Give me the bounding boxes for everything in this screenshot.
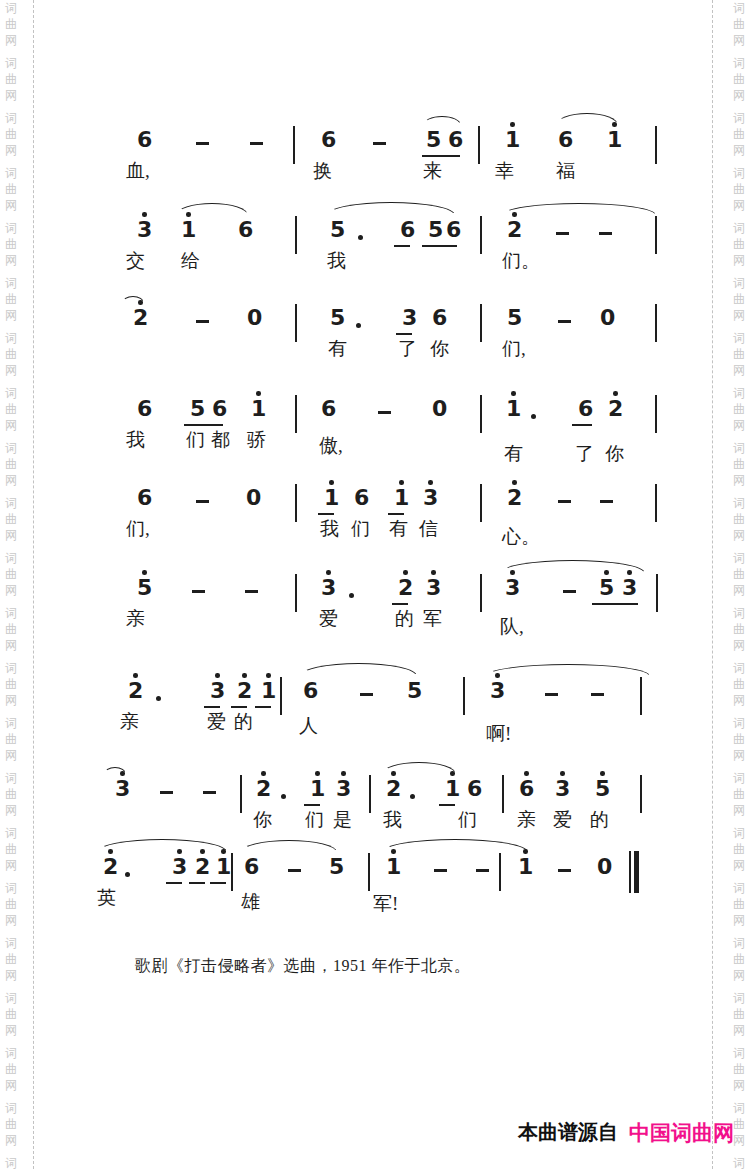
watermark-text: 网 — [733, 639, 745, 651]
note-digit: 5 — [190, 397, 205, 421]
watermark-text: 词 — [5, 167, 17, 179]
slur-arc — [382, 839, 528, 852]
note-digit: 1 — [216, 855, 231, 879]
duration-dash — [196, 142, 209, 145]
note-digit: 2 — [128, 679, 143, 703]
duration-dash — [563, 590, 576, 593]
watermark-text: 词 — [733, 882, 745, 894]
note-digit: 6 — [238, 218, 253, 242]
watermark-text: 网 — [733, 1079, 745, 1091]
watermark-text: 曲 — [5, 843, 17, 855]
watermark-text: 曲 — [5, 1008, 17, 1020]
note-digit: 6 — [244, 855, 259, 879]
watermark-text: 词 — [733, 112, 745, 124]
watermark-text: 词 — [5, 1047, 17, 1059]
note-digit: 3 — [423, 486, 438, 510]
lyric-syllable: 幸 — [495, 160, 514, 181]
lyric-syllable: 的 — [395, 608, 414, 629]
note-digit: 5 — [407, 679, 422, 703]
note-digit: 3 — [505, 576, 520, 600]
slur-arc — [176, 203, 248, 215]
octave-dot — [142, 212, 147, 217]
watermark-text: 网 — [5, 694, 17, 706]
lyric-syllable: 军 — [423, 608, 442, 629]
barline — [231, 853, 233, 891]
footer-site-link[interactable]: 中国词曲网 — [629, 1119, 734, 1147]
footer-source-label: 本曲谱源自 — [518, 1119, 618, 1146]
note-digit: 2 — [398, 576, 413, 600]
slur-arc — [327, 202, 455, 215]
watermark-text: 词 — [5, 57, 17, 69]
eighth-underline — [394, 245, 410, 247]
slur-arc — [382, 762, 456, 774]
duration-dash — [192, 590, 205, 593]
eighth-underline — [255, 706, 271, 708]
note-digit: 3 — [336, 777, 351, 801]
watermark-text: 词 — [5, 827, 17, 839]
eighth-underline — [439, 804, 455, 806]
watermark-text: 词 — [5, 112, 17, 124]
note-digit: 1 — [505, 128, 520, 152]
note-digit: 5 — [428, 218, 443, 242]
lyric-syllable: 雄 — [241, 891, 260, 912]
watermark-text: 网 — [5, 364, 17, 376]
note-digit: 0 — [597, 855, 612, 879]
barline — [480, 216, 482, 254]
note-digit: 2 — [608, 397, 623, 421]
eighth-underline — [210, 882, 226, 884]
watermark-text: 曲 — [733, 128, 745, 140]
barline — [293, 126, 295, 164]
watermark-text: 词 — [5, 717, 17, 729]
lyric-syllable: 亲 — [120, 711, 139, 732]
watermark-text: 网 — [733, 144, 745, 156]
octave-dot — [133, 673, 138, 678]
duration-dash — [556, 232, 569, 235]
lyric-syllable: 们 — [458, 809, 477, 830]
watermark-text: 曲 — [5, 183, 17, 195]
watermark-text: 词 — [5, 662, 17, 674]
watermark-text: 曲 — [5, 623, 17, 635]
watermark-text: 网 — [5, 419, 17, 431]
duration-dash — [288, 869, 301, 872]
watermark-text: 曲 — [5, 678, 17, 690]
duration-dash — [558, 320, 571, 323]
lyric-syllable: 亲 — [517, 809, 536, 830]
watermark-text: 曲 — [733, 1008, 745, 1020]
lyric-syllable: 爱 — [553, 809, 572, 830]
lyric-syllable: 换 — [313, 160, 332, 181]
watermark-left-column: 词曲网词曲网词曲网词曲网词曲网词曲网词曲网词曲网词曲网词曲网词曲网词曲网词曲网词… — [5, 0, 21, 1169]
watermark-text: 曲 — [733, 18, 745, 30]
watermark-text: 词 — [733, 442, 745, 454]
watermark-text: 词 — [733, 607, 745, 619]
watermark-text: 网 — [5, 89, 17, 101]
note-digit: 5 — [507, 306, 522, 330]
note-digit: 1 — [445, 777, 460, 801]
barline — [655, 126, 657, 164]
note-digit: 6 — [321, 397, 336, 421]
lyric-syllable: 傲, — [319, 435, 343, 456]
octave-dot — [431, 570, 436, 575]
watermark-text: 词 — [5, 1157, 17, 1169]
watermark-text: 曲 — [5, 1063, 17, 1075]
eighth-underline — [572, 424, 592, 426]
watermark-text: 曲 — [5, 953, 17, 965]
watermark-text: 网 — [733, 694, 745, 706]
watermark-text: 网 — [733, 474, 745, 486]
watermark-text: 网 — [733, 914, 745, 926]
watermark-text: 网 — [733, 529, 745, 541]
duration-dash — [558, 500, 571, 503]
watermark-text: 网 — [5, 969, 17, 981]
watermark-text: 词 — [5, 882, 17, 894]
watermark-text: 网 — [5, 749, 17, 761]
lyric-syllable: 我 — [320, 518, 339, 539]
note-digit: 6 — [558, 128, 573, 152]
watermark-text: 曲 — [733, 348, 745, 360]
watermark-text: 词 — [733, 387, 745, 399]
note-digit: 3 — [210, 679, 225, 703]
eighth-underline — [184, 424, 223, 426]
duration-dash — [245, 590, 258, 593]
slur-arc — [241, 840, 337, 852]
lyric-syllable: 了 — [398, 338, 417, 359]
duration-dash — [196, 500, 209, 503]
watermark-text: 曲 — [5, 403, 17, 415]
watermark-text: 词 — [733, 827, 745, 839]
barline — [480, 304, 482, 342]
slur-arc — [97, 839, 227, 852]
note-digit: 6 — [467, 777, 482, 801]
watermark-text: 词 — [5, 442, 17, 454]
lyric-syllable: 们 — [186, 429, 205, 450]
watermark-text: 词 — [5, 332, 17, 344]
watermark-text: 词 — [733, 277, 745, 289]
lyric-syllable: 我 — [327, 250, 346, 271]
watermark-text: 词 — [5, 937, 17, 949]
score-page: 词曲网词曲网词曲网词曲网词曲网词曲网词曲网词曲网词曲网词曲网词曲网词曲网词曲网词… — [0, 0, 752, 1169]
note-digit: 1 — [518, 855, 533, 879]
note-digit: 6 — [212, 397, 227, 421]
watermark-text: 词 — [733, 662, 745, 674]
slur-arc — [423, 116, 461, 125]
duration-dash — [545, 693, 558, 696]
augmentation-dot — [349, 593, 354, 598]
watermark-text: 网 — [5, 859, 17, 871]
octave-dot — [403, 570, 408, 575]
barline — [480, 574, 482, 612]
slur-arc — [486, 664, 650, 676]
augmentation-dot — [531, 414, 536, 419]
octave-dot — [510, 122, 515, 127]
octave-dot — [560, 771, 565, 776]
note-digit: 1 — [386, 855, 401, 879]
note-digit: 0 — [246, 486, 261, 510]
lyric-syllable: 有 — [389, 518, 408, 539]
note-digit: 2 — [507, 486, 522, 510]
barline — [655, 484, 657, 522]
watermark-text: 网 — [5, 34, 17, 46]
watermark-text: 词 — [5, 552, 17, 564]
watermark-text: 网 — [5, 254, 17, 266]
octave-dot — [613, 391, 618, 396]
barline — [295, 216, 297, 254]
watermark-left-dashed-line — [33, 0, 34, 1169]
watermark-text: 网 — [5, 804, 17, 816]
duration-dash — [360, 693, 373, 696]
watermark-text: 网 — [733, 584, 745, 596]
note-digit: 6 — [400, 218, 415, 242]
note-digit: 1 — [181, 218, 196, 242]
note-digit: 5 — [595, 777, 610, 801]
watermark-text: 曲 — [5, 18, 17, 30]
lyric-syllable: 们, — [502, 338, 526, 359]
note-digit: 3 — [402, 306, 417, 330]
note-digit: 3 — [490, 679, 505, 703]
watermark-text: 曲 — [5, 458, 17, 470]
duration-dash — [434, 869, 447, 872]
watermark-text: 网 — [733, 1024, 745, 1036]
barline — [295, 304, 297, 342]
watermark-text: 曲 — [5, 733, 17, 745]
watermark-text: 词 — [733, 772, 745, 784]
duration-dash — [378, 411, 391, 414]
eighth-underline — [166, 882, 182, 884]
note-digit: 1 — [251, 397, 266, 421]
slur-arc — [300, 663, 417, 676]
octave-dot — [142, 570, 147, 575]
eighth-underline — [592, 603, 638, 605]
watermark-text: 词 — [733, 1157, 745, 1169]
lyric-syllable: 你 — [430, 338, 449, 359]
note-digit: 0 — [432, 397, 447, 421]
watermark-text: 曲 — [733, 183, 745, 195]
lyric-syllable: 给 — [181, 250, 200, 271]
lyric-syllable: 爱 — [319, 608, 338, 629]
watermark-text: 词 — [733, 1047, 745, 1059]
barline — [499, 853, 501, 891]
note-digit: 3 — [115, 777, 130, 801]
lyric-syllable: 信 — [419, 518, 438, 539]
watermark-right-dashed-line — [712, 0, 713, 1169]
watermark-text: 网 — [5, 529, 17, 541]
octave-dot — [428, 480, 433, 485]
watermark-text: 曲 — [733, 1063, 745, 1075]
barline — [655, 304, 657, 342]
watermark-text: 网 — [5, 199, 17, 211]
watermark-text: 曲 — [5, 293, 17, 305]
note-digit: 5 — [599, 576, 614, 600]
watermark-text: 曲 — [5, 238, 17, 250]
octave-dot — [341, 771, 346, 776]
watermark-text: 词 — [733, 552, 745, 564]
note-digit: 5 — [330, 306, 345, 330]
note-digit: 5 — [330, 218, 345, 242]
watermark-text: 词 — [5, 222, 17, 234]
watermark-text: 词 — [733, 1102, 745, 1114]
barline — [369, 775, 371, 813]
duration-dash — [160, 791, 173, 794]
watermark-text: 网 — [733, 1134, 745, 1146]
lyric-syllable: 有 — [504, 443, 523, 464]
watermark-text: 曲 — [733, 953, 745, 965]
watermark-text: 词 — [5, 992, 17, 1004]
lyric-syllable: 们。 — [502, 250, 540, 271]
note-digit: 3 — [137, 218, 152, 242]
watermark-text: 网 — [5, 1079, 17, 1091]
lyric-syllable: 你 — [605, 443, 624, 464]
watermark-text: 网 — [733, 309, 745, 321]
lyric-syllable: 我 — [383, 809, 402, 830]
barline — [480, 395, 482, 433]
barline — [295, 484, 297, 522]
barline — [295, 395, 297, 433]
watermark-text: 曲 — [733, 1118, 745, 1130]
note-digit: 2 — [256, 777, 271, 801]
duration-dash — [591, 693, 604, 696]
octave-dot — [242, 673, 247, 678]
watermark-text: 词 — [733, 2, 745, 14]
slur-arc — [104, 767, 126, 774]
eighth-underline — [422, 155, 460, 157]
lyric-syllable: 我 — [126, 429, 145, 450]
watermark-text: 曲 — [5, 513, 17, 525]
watermark-text: 网 — [733, 364, 745, 376]
octave-dot — [600, 771, 605, 776]
barline — [240, 775, 242, 813]
note-digit: 1 — [506, 397, 521, 421]
lyric-syllable: 你 — [253, 809, 272, 830]
augmentation-dot — [281, 794, 286, 799]
duration-dash — [203, 791, 216, 794]
watermark-text: 网 — [5, 474, 17, 486]
barline — [368, 853, 370, 891]
augmentation-dot — [125, 872, 130, 877]
eighth-underline — [422, 245, 457, 247]
note-digit: 1 — [310, 777, 325, 801]
note-digit: 3 — [321, 576, 336, 600]
watermark-text: 词 — [5, 1102, 17, 1114]
lyric-syllable: 骄 — [247, 429, 266, 450]
watermark-text: 曲 — [733, 238, 745, 250]
note-digit: 3 — [555, 777, 570, 801]
watermark-text: 词 — [5, 772, 17, 784]
augmentation-dot — [356, 323, 361, 328]
watermark-text: 网 — [733, 859, 745, 871]
eighth-underline — [388, 513, 404, 515]
watermark-text: 网 — [733, 89, 745, 101]
watermark-text: 曲 — [5, 788, 17, 800]
watermark-text: 曲 — [733, 513, 745, 525]
note-digit: 6 — [354, 486, 369, 510]
lyric-syllable: 都 — [211, 429, 230, 450]
note-digit: 1 — [324, 486, 339, 510]
note-digit: 3 — [426, 576, 441, 600]
watermark-text: 网 — [5, 639, 17, 651]
note-digit: 0 — [247, 306, 262, 330]
slur-arc — [502, 203, 656, 215]
note-digit: 5 — [329, 855, 344, 879]
barline — [295, 574, 297, 612]
watermark-text: 词 — [5, 497, 17, 509]
watermark-text: 词 — [733, 937, 745, 949]
watermark-text: 曲 — [733, 733, 745, 745]
final-barline-thick — [634, 851, 639, 893]
watermark-text: 网 — [733, 749, 745, 761]
lyric-syllable: 们 — [305, 809, 324, 830]
octave-dot — [511, 391, 516, 396]
watermark-text: 词 — [733, 222, 745, 234]
lyric-syllable: 军! — [373, 893, 398, 914]
lyric-syllable: 交 — [126, 250, 145, 271]
note-digit: 1 — [394, 486, 409, 510]
note-digit: 5 — [137, 576, 152, 600]
note-digit: 2 — [103, 855, 118, 879]
slur-arc — [122, 296, 144, 303]
lyric-syllable: 来 — [423, 160, 442, 181]
watermark-text: 网 — [733, 254, 745, 266]
note-digit: 2 — [133, 306, 148, 330]
watermark-text: 词 — [733, 167, 745, 179]
watermark-text: 网 — [5, 309, 17, 321]
duration-dash — [250, 142, 263, 145]
watermark-text: 曲 — [733, 403, 745, 415]
lyric-syllable: 的 — [590, 809, 609, 830]
octave-dot — [524, 771, 529, 776]
watermark-text: 曲 — [733, 788, 745, 800]
octave-dot — [512, 480, 517, 485]
watermark-text: 曲 — [733, 458, 745, 470]
augmentation-dot — [410, 794, 415, 799]
note-digit: 6 — [137, 128, 152, 152]
watermark-text: 曲 — [733, 73, 745, 85]
watermark-text: 词 — [733, 497, 745, 509]
watermark-text: 曲 — [733, 678, 745, 690]
watermark-text: 网 — [733, 34, 745, 46]
octave-dot — [399, 480, 404, 485]
lyric-syllable: 英 — [97, 887, 116, 908]
note-digit: 6 — [321, 128, 336, 152]
watermark-text: 曲 — [733, 623, 745, 635]
duration-dash — [558, 869, 571, 872]
note-digit: 6 — [137, 486, 152, 510]
eighth-underline — [392, 603, 408, 605]
note-digit: 1 — [607, 128, 622, 152]
lyric-syllable: 的 — [234, 711, 253, 732]
octave-dot — [329, 480, 334, 485]
lyric-syllable: 心。 — [502, 526, 540, 547]
octave-dot — [266, 673, 271, 678]
duration-dash — [599, 232, 612, 235]
barline — [655, 395, 657, 433]
watermark-text: 曲 — [5, 73, 17, 85]
octave-dot — [315, 771, 320, 776]
watermark-text: 曲 — [5, 128, 17, 140]
barline — [640, 677, 642, 715]
final-barline-thin — [629, 851, 631, 893]
eighth-underline — [396, 333, 412, 335]
watermark-text: 网 — [5, 144, 17, 156]
eighth-underline — [231, 706, 247, 708]
watermark-text: 网 — [733, 419, 745, 431]
watermark-text: 词 — [5, 607, 17, 619]
watermark-text: 曲 — [733, 568, 745, 580]
watermark-text: 网 — [5, 1024, 17, 1036]
slur-arc — [500, 560, 645, 573]
eighth-underline — [318, 513, 334, 515]
eighth-underline — [204, 706, 220, 708]
